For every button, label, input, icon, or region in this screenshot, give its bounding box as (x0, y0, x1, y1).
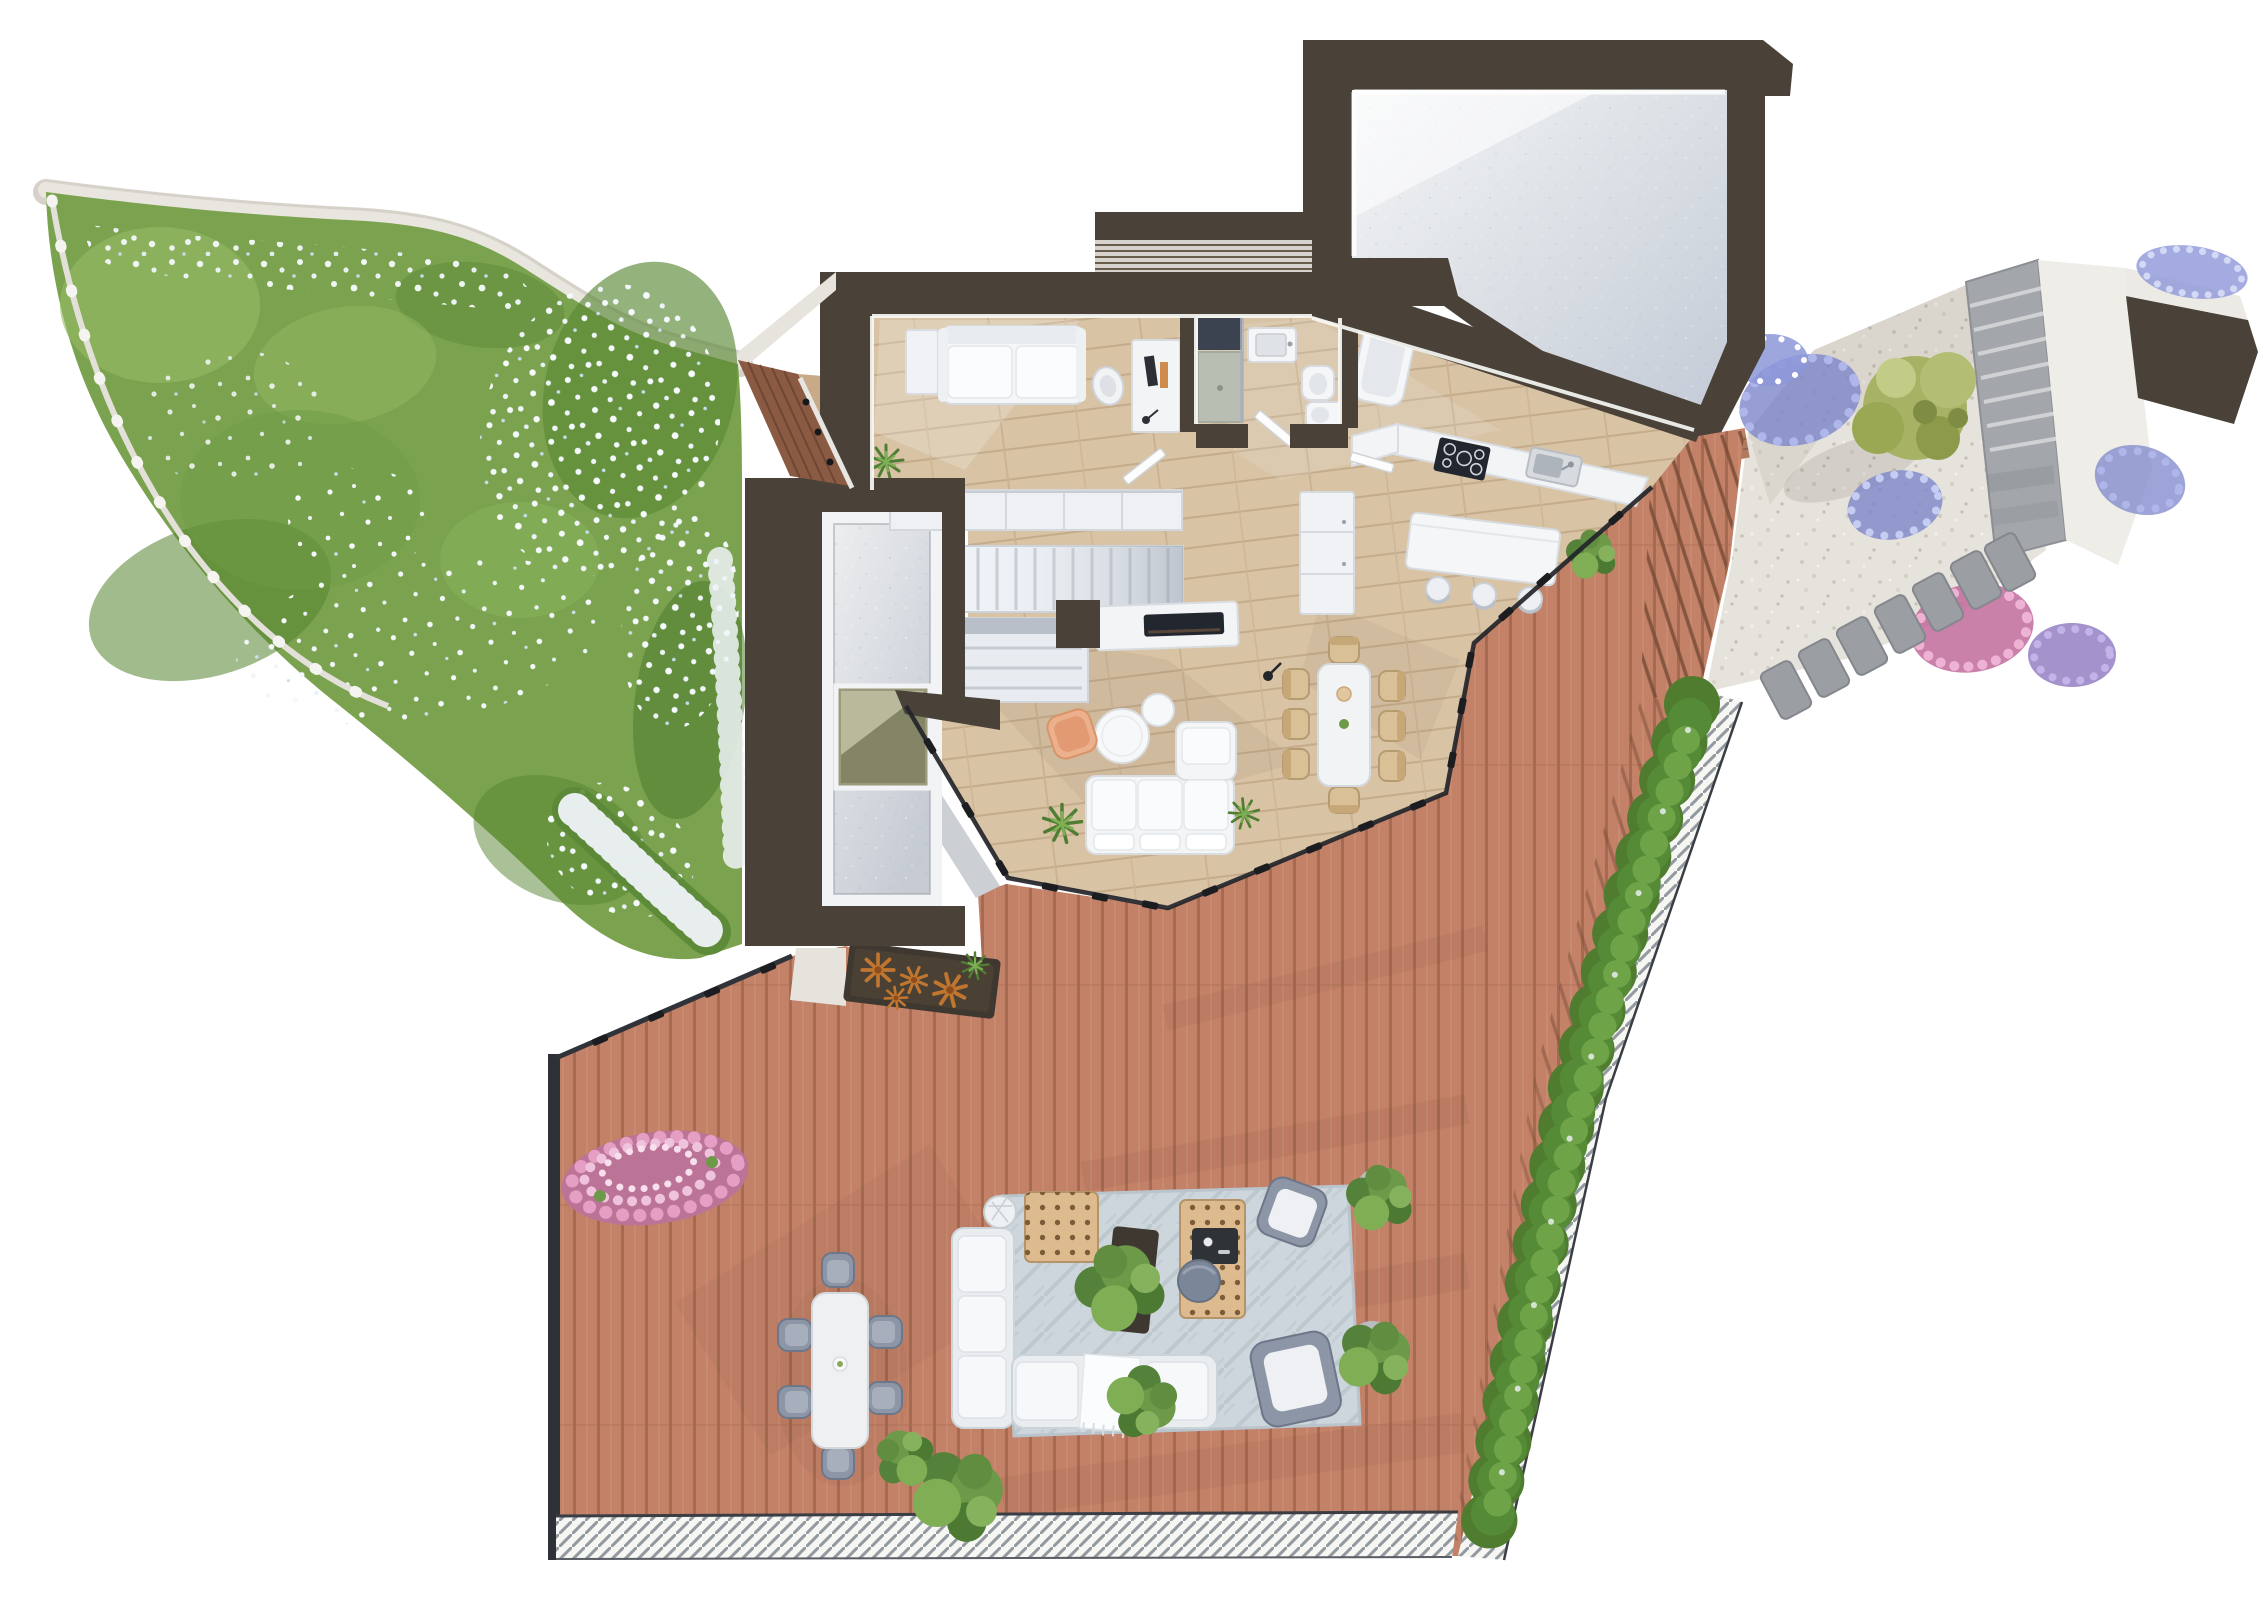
desk (1132, 340, 1180, 432)
bathroom-sink (1248, 328, 1296, 362)
outdoor-armchair-bottom (1248, 1329, 1344, 1430)
shower-glass (1198, 318, 1242, 350)
garden (46, 190, 764, 959)
rattan-table-small (1025, 1192, 1098, 1262)
gravel-courtyard (1706, 238, 2258, 720)
fireplace (1095, 602, 1238, 651)
bed (938, 326, 1086, 404)
entry-canopy (1095, 240, 1312, 272)
serving-tray (1192, 1228, 1238, 1264)
nightstand (906, 330, 938, 394)
coffee-table-large (1095, 709, 1149, 763)
floor-plan-rendering (0, 0, 2264, 1620)
tall-cabinet (1300, 492, 1354, 614)
pouf (1178, 1260, 1220, 1302)
coffee-table-small (1142, 694, 1174, 726)
bidet (1302, 366, 1334, 400)
geo-decor (984, 1196, 1016, 1228)
terrace-left-edge (548, 1054, 560, 1560)
